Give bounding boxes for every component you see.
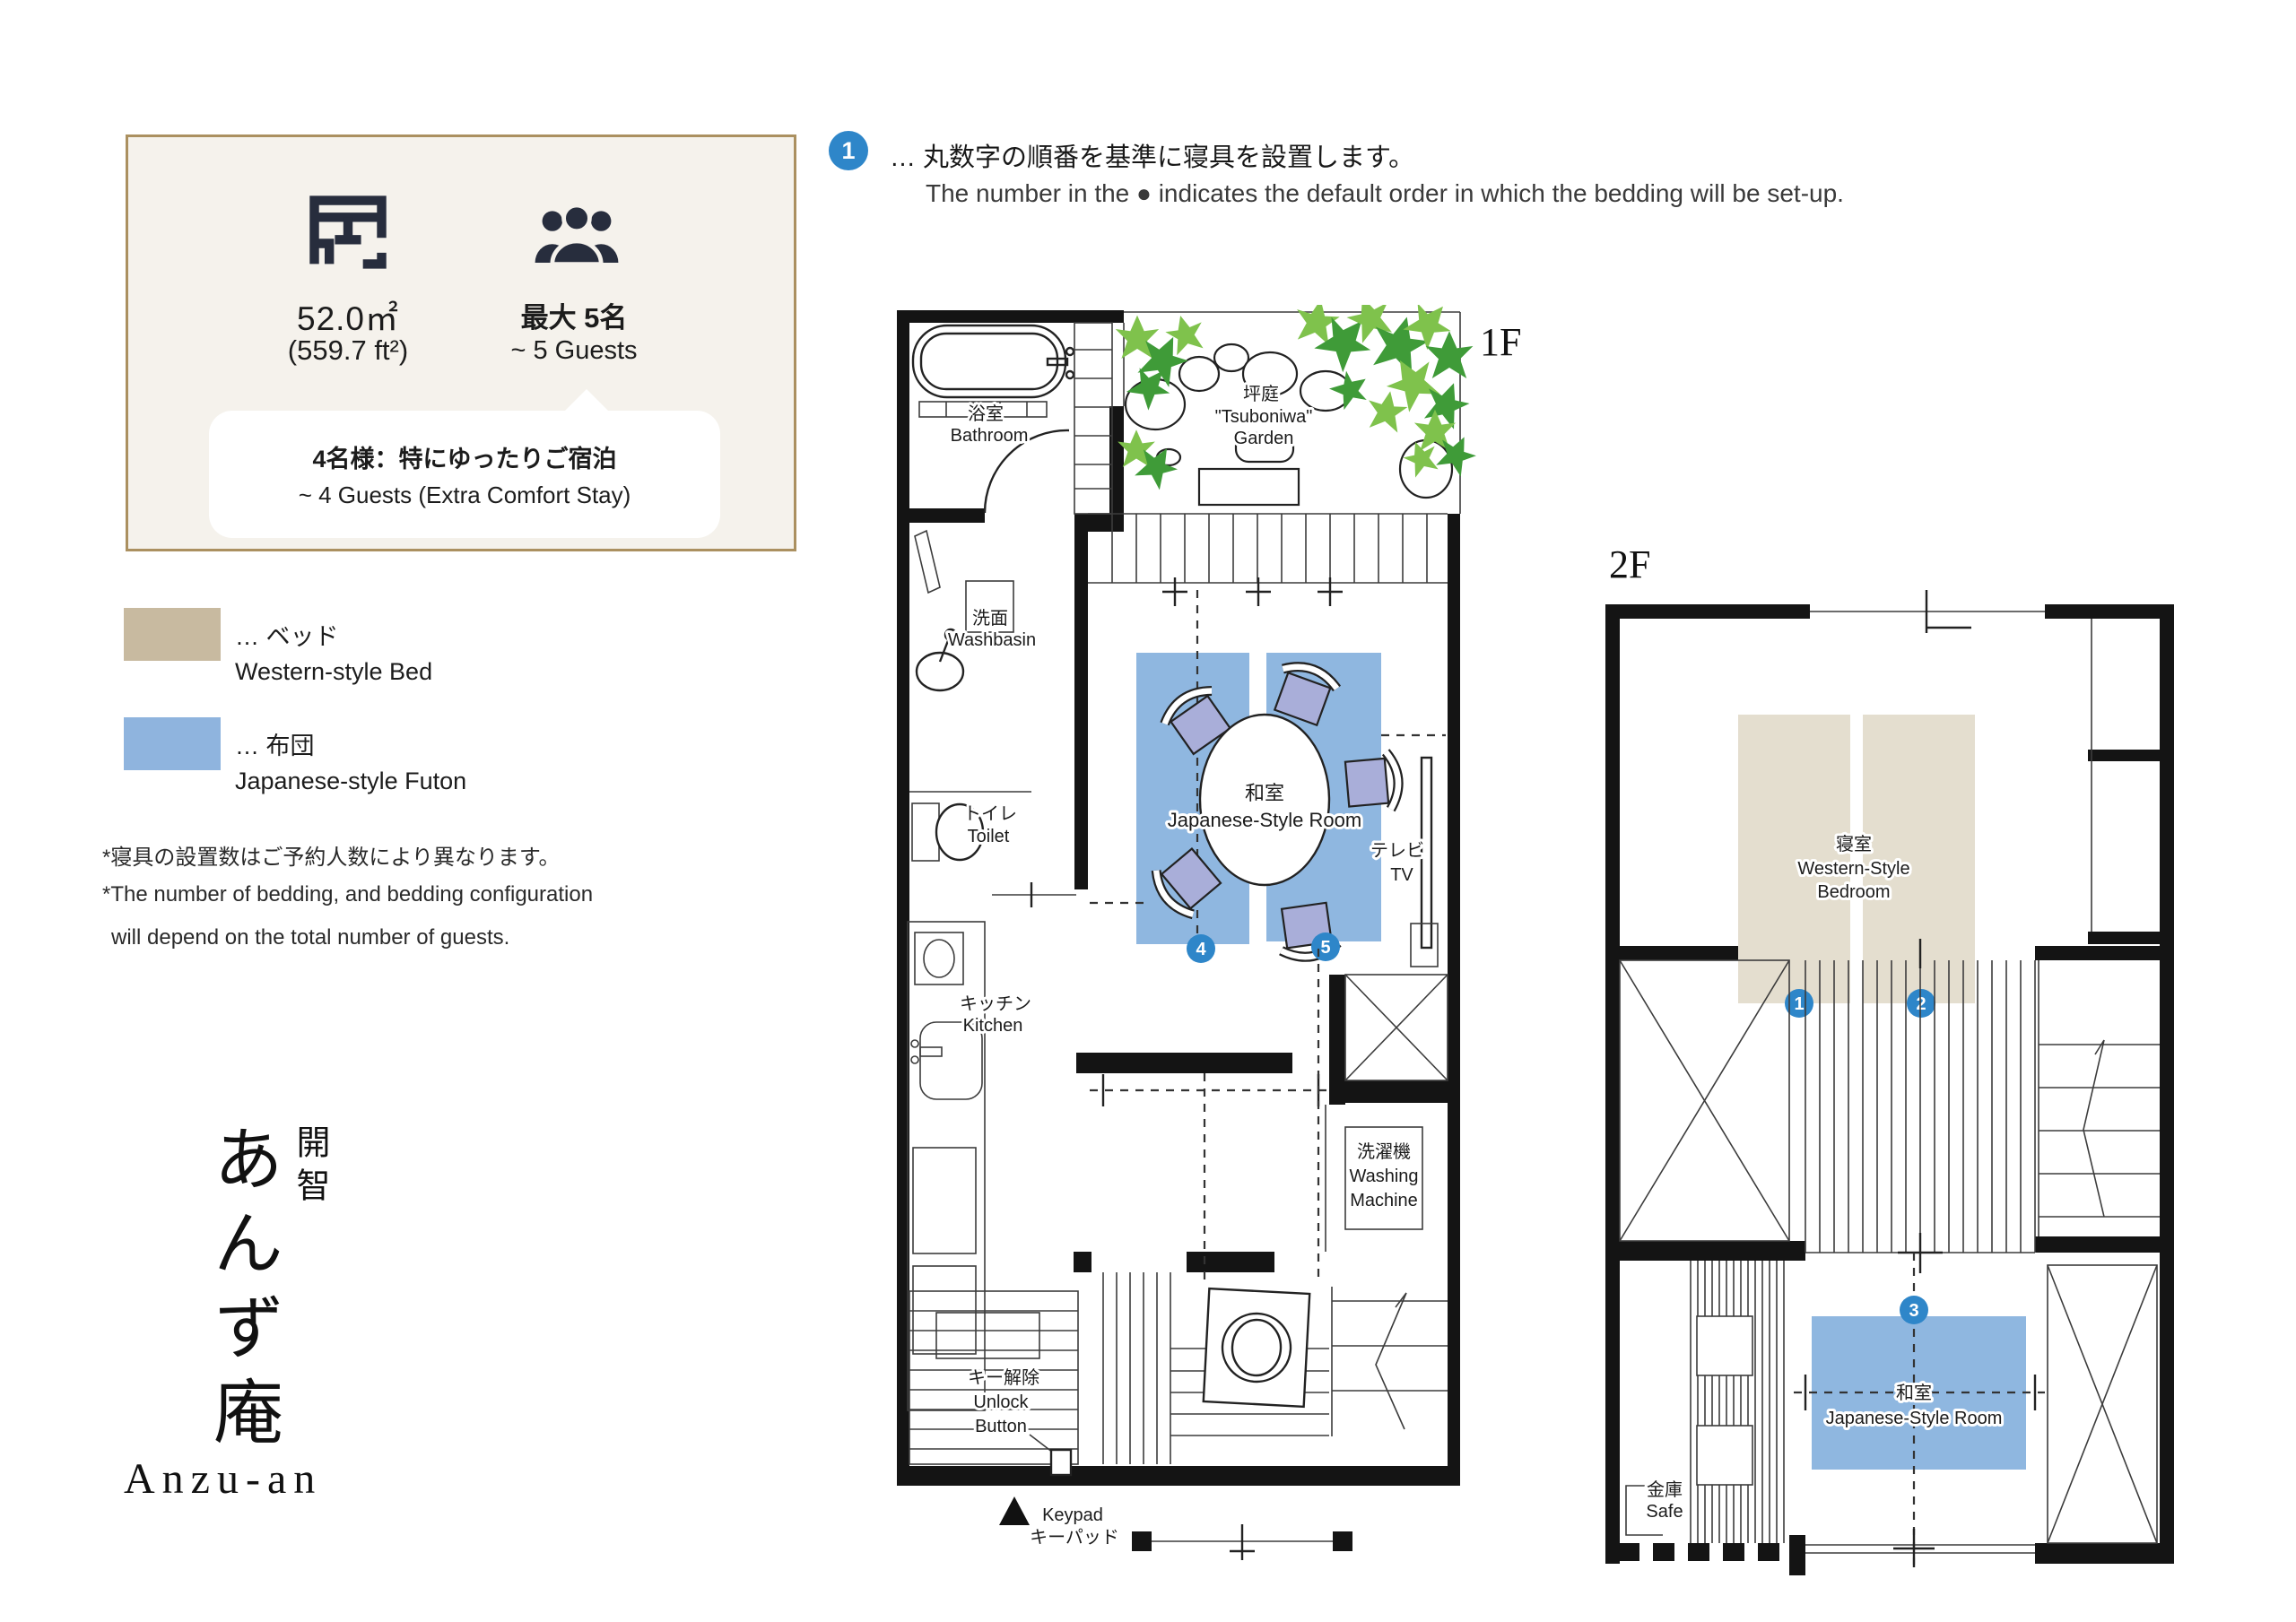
keypad-label-jp: キーパッド — [1030, 1528, 1119, 1548]
legend-bed-jp: … ベッド — [235, 617, 339, 652]
washing-label-en1: Washing — [1349, 1167, 1418, 1186]
comfort-bubble: 4名様：特にゆったりご宿泊 ~ 4 Guests (Extra Comfort … — [209, 411, 720, 538]
area-ft2: (559.7 ft²) — [288, 334, 408, 367]
stairwell-void — [1805, 960, 2035, 1253]
order-badge-1: 1 — [829, 131, 868, 170]
keypad-marker-triangle — [999, 1496, 1030, 1525]
area-m2: 52.0㎡ — [297, 291, 399, 340]
brand-prefix-jp: 開智 — [285, 1124, 335, 1210]
room2f-label-jp: 和室 — [1896, 1383, 1932, 1403]
bubble-tail — [562, 389, 611, 413]
floor2-label: 2F — [1609, 542, 1650, 586]
unlock-label-en1: Unlock — [973, 1392, 1029, 1412]
note-en-2: will depend on the total number of guest… — [111, 925, 509, 950]
entrance-area: キー解除 Unlock Button Keypad キーパッド — [909, 1291, 1119, 1548]
washbasin-area: 洗面 Washbasin — [909, 531, 1036, 792]
toilet-area: トイレ Toilet — [912, 803, 1076, 907]
svg-text:2: 2 — [1916, 994, 1926, 1014]
bedroom-label-en1: Western-Style — [1797, 859, 1909, 879]
dimension-ticks — [1162, 577, 1343, 606]
legend-bed-en: Western-style Bed — [235, 658, 432, 686]
safe: 金庫 Safe — [1626, 1479, 1683, 1535]
stairs-1f — [1332, 1287, 1448, 1436]
garden-label-jp: 坪庭 — [1243, 384, 1279, 404]
irori-table — [1204, 1288, 1309, 1407]
garden-label-en1: "Tsuboniwa" — [1215, 407, 1313, 427]
brand-name-en: Anzu-an — [124, 1454, 322, 1504]
stairs-2f — [2039, 960, 2160, 1236]
legend-futon-swatch — [124, 717, 221, 770]
washing-label-jp: 洗濯機 — [1357, 1141, 1411, 1162]
comfort-jp: 4名様：特にゆったりご宿泊 — [312, 439, 616, 474]
floorplan-page: 52.0㎡ (559.7 ft²) 最大 5名 ~ 5 Guests 4名様：特… — [0, 0, 2296, 1622]
closet-xbox-2f-right — [2048, 1265, 2157, 1543]
washbasin-label-jp: 洗面 — [972, 608, 1008, 629]
porch — [1132, 1524, 1352, 1560]
floorplan-2f: 2F 寝室 Western-Style — [1596, 538, 2215, 1587]
hall-gridlines — [1090, 949, 1327, 1285]
engawa-deck — [1088, 514, 1448, 606]
tv-label-en: TV — [1390, 865, 1413, 885]
washbasin-label-en: Washbasin — [948, 630, 1036, 650]
svg-text:5: 5 — [1320, 938, 1330, 958]
bathroom: 浴室 Bathroom — [913, 323, 1112, 514]
bathroom-label-jp: 浴室 — [968, 403, 1004, 424]
closet-xbox-1f — [1345, 975, 1448, 1080]
guests-icon — [534, 202, 620, 271]
svg-text:1: 1 — [1794, 994, 1804, 1014]
closet-xbox-2f-left — [1620, 960, 1789, 1241]
floorplan-icon — [303, 189, 393, 280]
unlock-label-en2: Button — [975, 1417, 1027, 1436]
svg-text:3: 3 — [1909, 1301, 1918, 1321]
svg-text:4: 4 — [1196, 940, 1206, 959]
tv-label-jp: テレビ — [1370, 840, 1424, 861]
garden-label-en2: Garden — [1234, 429, 1294, 448]
room2f-label-en: Japanese-Style Room — [1826, 1409, 2003, 1428]
safe-label-en: Safe — [1646, 1502, 1683, 1522]
bathroom-label-en: Bathroom — [951, 426, 1029, 446]
safe-label-jp: 金庫 — [1647, 1479, 1683, 1500]
washing-machine-area: 洗濯機 Washing Machine — [1326, 1105, 1422, 1252]
bedroom-label-jp: 寝室 — [1836, 834, 1872, 854]
slat-screen — [1691, 1261, 1784, 1543]
washbasin-bowl — [917, 653, 963, 690]
comfort-en: ~ 4 Guests (Extra Comfort Stay) — [299, 481, 631, 509]
western-bedroom: 寝室 Western-Style Bedroom 1 2 — [1738, 715, 1975, 1018]
info-card: 52.0㎡ (559.7 ft²) 最大 5名 ~ 5 Guests 4名様：特… — [126, 134, 796, 551]
bottom-wall-2f — [1618, 1529, 2035, 1567]
note-en-1: *The number of bedding, and bedding conf… — [102, 882, 593, 907]
legend-futon-en: Japanese-style Futon — [235, 768, 466, 795]
capacity-en: ~ 5 Guests — [510, 336, 637, 366]
japanese-room-2f: 3 和室 Japanese-Style Room — [1794, 1253, 2045, 1565]
kitchen-label-en: Kitchen — [963, 1016, 1023, 1036]
toilet-label-en: Toilet — [968, 827, 1010, 846]
legend-futon-jp: … 布団 — [235, 726, 315, 761]
kitchen-area: キッチン Kitchen — [908, 922, 1031, 1410]
note-jp: *寝具の設置数はご予約人数により異なります。 — [102, 839, 560, 871]
floorplan-1f: 1F — [897, 305, 1525, 1578]
chair — [1344, 751, 1400, 813]
kitchen-label-jp: キッチン — [960, 994, 1031, 1014]
unlock-label-jp: キー解除 — [968, 1367, 1039, 1388]
bedroom-label-en2: Bedroom — [1817, 882, 1890, 902]
annotation-jp: … 丸数字の順番を基準に寝具を設置します。 — [890, 136, 1414, 174]
room1f-label-jp: 和室 — [1245, 782, 1284, 804]
toilet-label-jp: トイレ — [963, 804, 1017, 824]
keypad-box — [1051, 1450, 1071, 1475]
annotation-en: The number in the ● indicates the defaul… — [926, 179, 1844, 208]
tsuboniwa-garden: 坪庭 "Tsuboniwa" Garden — [1116, 305, 1482, 505]
floor1-label: 1F — [1480, 320, 1521, 364]
washing-label-en2: Machine — [1350, 1191, 1418, 1210]
capacity-jp: 最大 5名 — [521, 295, 628, 335]
brand-name-jp: あんず庵 — [192, 1123, 292, 1460]
keypad-label-en: Keypad — [1042, 1505, 1103, 1525]
room1f-label-en: Japanese-Style Room — [1168, 809, 1361, 831]
japanese-room-1f: 和室 Japanese-Style Room 4 5 テレビ TV — [1090, 590, 1446, 967]
legend-bed-swatch — [124, 608, 221, 661]
